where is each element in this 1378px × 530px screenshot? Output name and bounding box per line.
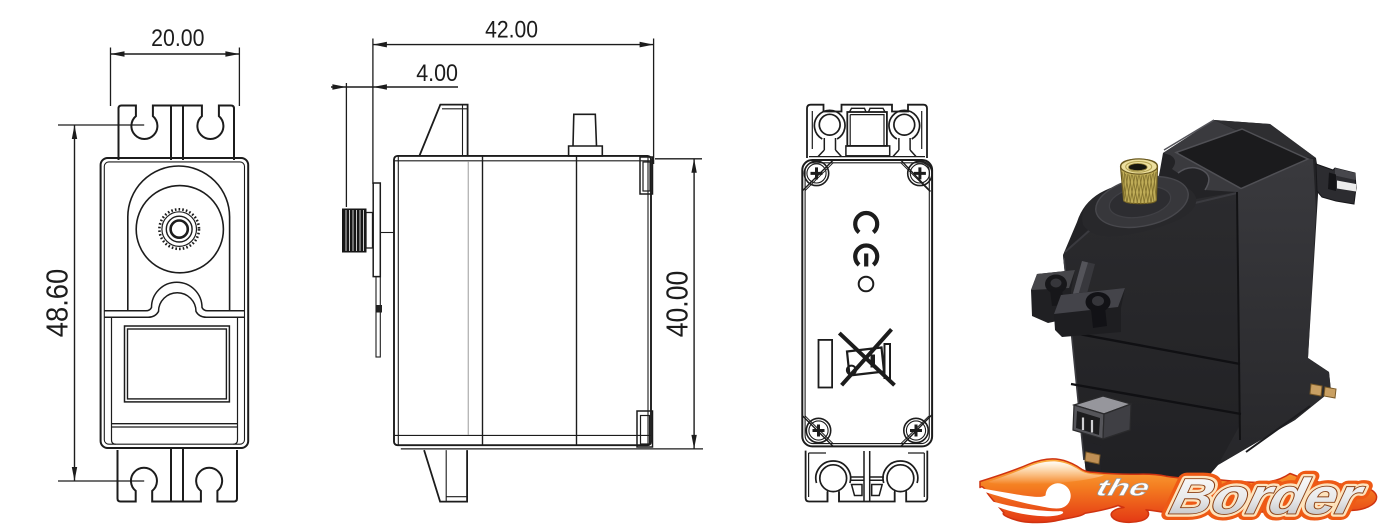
- svg-text:40.00: 40.00: [660, 271, 695, 338]
- svg-text:42.00: 42.00: [485, 17, 538, 44]
- svg-text:the: the: [1093, 475, 1152, 502]
- svg-text:Border: Border: [1165, 468, 1371, 524]
- svg-text:20.00: 20.00: [151, 25, 204, 52]
- svg-text:4.00: 4.00: [416, 60, 458, 87]
- svg-text:48.60: 48.60: [40, 269, 75, 338]
